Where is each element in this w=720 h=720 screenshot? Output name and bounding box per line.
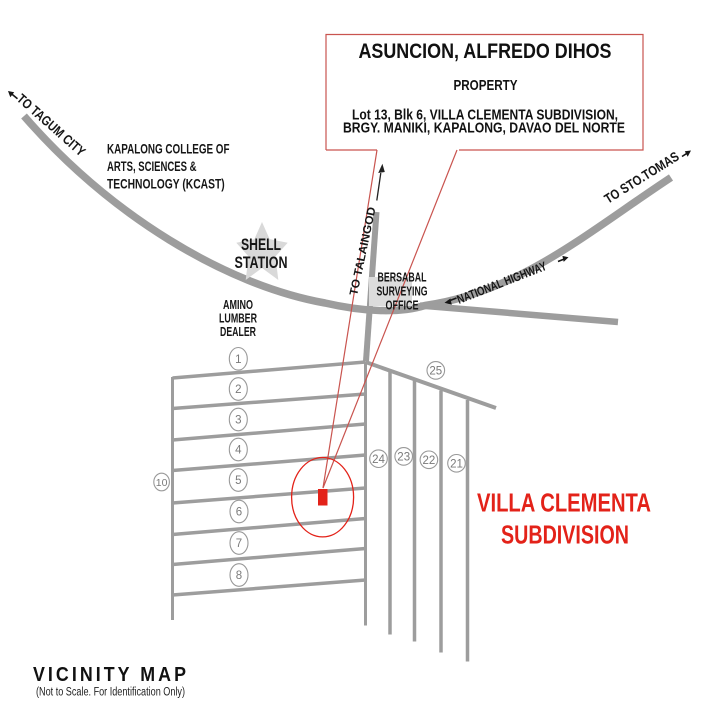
svg-text:SURVEYING: SURVEYING [377,285,428,299]
svg-text:1: 1 [235,354,241,366]
svg-text:BERSABAL: BERSABAL [378,271,427,285]
svg-text:SHELL: SHELL [241,235,281,254]
svg-text:2: 2 [235,384,241,396]
svg-text:3: 3 [235,415,241,427]
svg-text:STATION: STATION [235,253,288,272]
svg-text:ASUNCION, ALFREDO DIHOS: ASUNCION, ALFREDO DIHOS [359,40,612,63]
svg-text:25: 25 [429,366,442,378]
svg-text:4: 4 [235,445,242,457]
svg-text:21: 21 [450,459,463,471]
svg-text:VICINITY MAP: VICINITY MAP [33,663,189,686]
svg-text:7: 7 [236,538,242,550]
svg-text:24: 24 [372,454,385,466]
svg-text:6: 6 [236,507,242,519]
svg-text:VILLA CLEMENTA: VILLA CLEMENTA [477,488,651,518]
svg-text:KAPALONG COLLEGE OF: KAPALONG COLLEGE OF [107,142,230,157]
svg-text:5: 5 [235,475,241,487]
svg-text:23: 23 [397,452,410,464]
svg-text:ARTS, SCIENCES &: ARTS, SCIENCES & [107,159,197,174]
svg-text:BRGY. MANIKI, KAPALONG, DAVAO: BRGY. MANIKI, KAPALONG, DAVAO DEL NORTE [343,120,625,137]
svg-text:SUBDIVISION: SUBDIVISION [501,520,629,550]
svg-text:8: 8 [236,570,242,582]
svg-text:22: 22 [423,455,436,467]
svg-text:TECHNOLOGY (KCAST): TECHNOLOGY (KCAST) [107,177,225,192]
svg-text:DEALER: DEALER [220,324,256,339]
svg-text:(Not to Scale. For Identificat: (Not to Scale. For Identification Only) [36,687,185,699]
svg-text:PROPERTY: PROPERTY [454,77,518,94]
svg-text:OFFICE: OFFICE [386,299,419,313]
svg-text:10: 10 [156,477,168,489]
